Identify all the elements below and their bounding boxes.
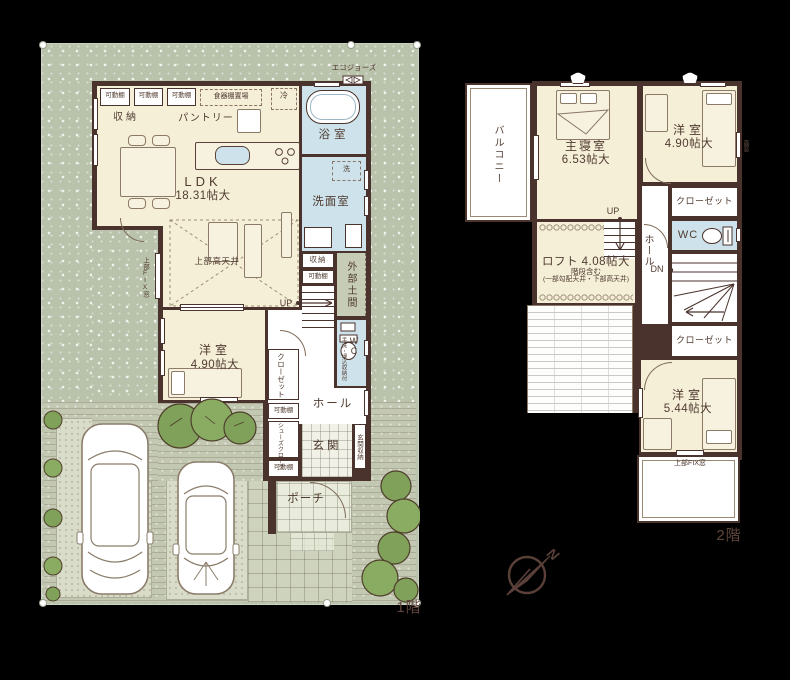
master-label: 主寝室 [556, 140, 616, 153]
closet-label: クローゼット [277, 352, 285, 398]
window [160, 350, 165, 376]
dining-chair [128, 198, 146, 209]
westB-size-label: 5.44帖大 [655, 403, 721, 416]
window [736, 228, 741, 242]
pillow [706, 93, 732, 105]
pillow [706, 430, 732, 444]
west-room-size-label: 4.90帖大 [182, 359, 248, 372]
compass-north-letter: N [544, 545, 563, 564]
wc2-label: WC [674, 229, 702, 241]
shelf-label: 可動棚 [268, 407, 299, 414]
up-label: UP [276, 298, 296, 308]
doma-label: 外部土間 [345, 256, 355, 314]
boundary-marker [413, 41, 421, 49]
f1-shoes-cloak [268, 421, 299, 458]
window [638, 388, 643, 418]
genkan-label: 玄関 [302, 440, 352, 453]
bath-label: 浴室 [308, 129, 360, 142]
up-arrow-f1 [294, 296, 338, 310]
eco-label: エコジョーズ [326, 64, 382, 72]
shelf-label: 可動棚 [100, 92, 130, 99]
wash-cabinet [345, 224, 362, 248]
f2-black-patch [527, 413, 639, 462]
fix-window-f1 [155, 253, 161, 299]
window [364, 196, 369, 216]
pantry-label: パントリー [168, 113, 244, 124]
bathtub-inner [310, 94, 356, 120]
washbasin [304, 227, 332, 248]
closetB-label: クローゼット [672, 335, 737, 345]
hedge-strip-icon [42, 406, 64, 602]
storage-label: 収納 [102, 112, 150, 123]
washer-label: 洗 [332, 166, 361, 174]
f1-porch-wall [268, 481, 276, 534]
floor1-tag: 1階 [388, 600, 430, 617]
shelf-label: 可動棚 [167, 92, 196, 99]
winder-stairs-icon [672, 254, 737, 322]
blanket-fold [556, 108, 610, 138]
high-window [736, 132, 741, 158]
car-large-icon [76, 420, 154, 598]
stove-icon [270, 145, 300, 167]
westA-size-label: 4.90帖大 [656, 138, 722, 151]
cupboard-label: 食器棚置場 [200, 93, 262, 101]
fix-window2-label: 上部FIX窓 [656, 460, 724, 468]
genkan-storage-label: 玄関収納 [355, 426, 362, 468]
wc-note-label: 手洗・埋込収納付 [340, 334, 346, 384]
up2-label: UP [602, 206, 624, 216]
ecojozu-icon [342, 75, 364, 85]
westB-label: 洋室 [659, 389, 717, 402]
window [364, 340, 369, 356]
shelf-label: 可動棚 [268, 464, 299, 471]
pillow [560, 93, 577, 104]
f2-roof-below [527, 305, 633, 415]
floor2-tag: 2階 [708, 528, 750, 545]
pillow [580, 93, 597, 104]
boundary-marker [347, 41, 355, 49]
balcony-label: バルコニー [492, 115, 502, 195]
washroom-label: 洗面室 [300, 196, 362, 209]
roof-vent-icon [682, 72, 698, 84]
tree-cluster-icon [150, 396, 262, 458]
porch-label: ポーチ [282, 493, 330, 506]
high-ceiling-label: 上部高天井 [185, 257, 249, 267]
sliding-door [180, 304, 244, 311]
fix-window-f2 [676, 450, 704, 456]
window [160, 318, 165, 344]
wc-label: WC [349, 332, 358, 360]
dn-label: DN [646, 264, 668, 274]
car-small-icon [172, 458, 240, 598]
pillow [171, 371, 185, 395]
compass-icon: N [500, 543, 564, 601]
storage2-label: 収納 [302, 256, 334, 264]
westA-label: 洋室 [660, 124, 718, 137]
window [93, 134, 98, 166]
toilet-icon-f2 [700, 224, 736, 248]
window [364, 170, 369, 190]
window [700, 82, 726, 87]
shelf-label: 可動棚 [134, 92, 163, 99]
f1-porch-step [290, 533, 334, 551]
tv-board [281, 212, 292, 258]
fix-window-label: 上部FIX窓 [141, 252, 148, 302]
sofa [244, 224, 262, 278]
hall-label: ホール [304, 398, 362, 411]
dining-chair [152, 135, 170, 146]
loft-note2-label: (一部勾配天井・下部高天井) [533, 276, 639, 284]
high-window-label: 高窓 [742, 133, 748, 159]
closetA-label: クローゼット [672, 196, 737, 206]
boundary-marker [323, 599, 331, 607]
loft-slope-hatch [539, 294, 633, 301]
floorplan-canvas: 可動棚 可動棚 可動棚 食器棚置場 冷 エコジョーズ 収納 パントリー LDK … [0, 0, 790, 680]
ldk-size-label: 18.31帖大 [160, 190, 246, 203]
window [314, 82, 340, 87]
fridge-label: 冷 [271, 92, 297, 101]
kitchen-sink [215, 146, 250, 165]
balcony-door [533, 135, 539, 180]
desk-westB [643, 418, 672, 450]
dining-chair [128, 135, 146, 146]
loft-down-arrow [612, 216, 628, 256]
ldk-label: LDK [167, 175, 239, 190]
bathtub [306, 90, 360, 124]
boundary-marker [39, 41, 47, 49]
shelf-label: 可動棚 [302, 273, 334, 280]
west-room-label: 洋室 [186, 344, 244, 357]
shoes-cloak-label: シューズクローク [276, 422, 281, 457]
tree-cluster-icon [344, 468, 420, 606]
f2-lower-deck-inner [642, 460, 735, 518]
window [93, 98, 98, 130]
service-door [364, 390, 369, 416]
roof-vent-icon [570, 72, 586, 84]
master-size-label: 6.53帖大 [553, 154, 619, 167]
